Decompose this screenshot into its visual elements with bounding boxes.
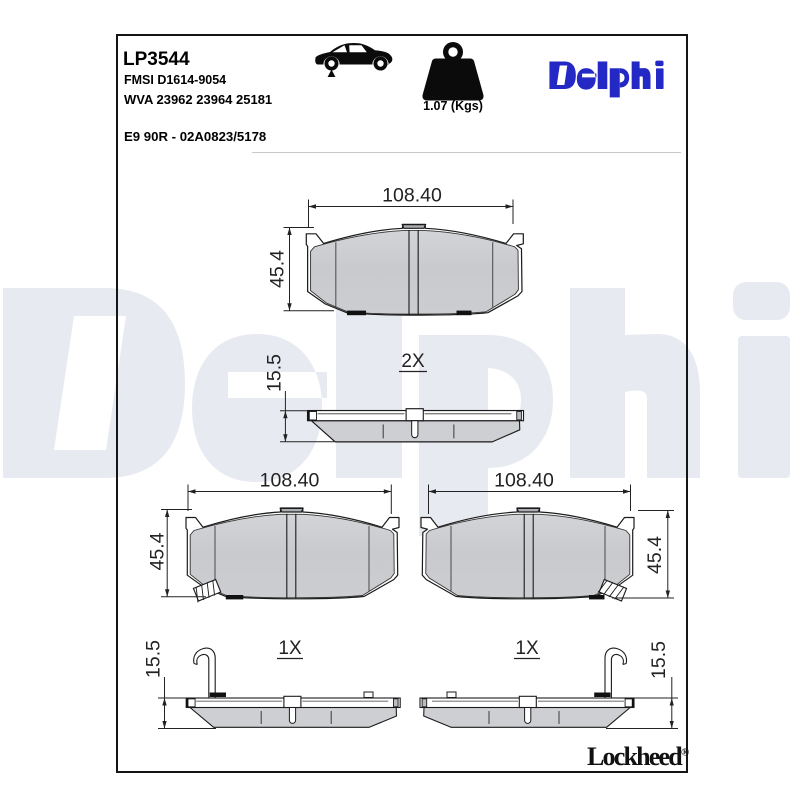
svg-text:1X: 1X bbox=[515, 638, 539, 659]
svg-text:45.4: 45.4 bbox=[644, 536, 666, 574]
svg-text:15.5: 15.5 bbox=[143, 640, 165, 678]
svg-text:108.40: 108.40 bbox=[494, 470, 554, 492]
svg-text:108.40: 108.40 bbox=[260, 470, 320, 492]
svg-text:45.4: 45.4 bbox=[267, 250, 289, 288]
svg-text:45.4: 45.4 bbox=[147, 532, 169, 570]
svg-text:1X: 1X bbox=[278, 638, 302, 659]
svg-text:2X: 2X bbox=[401, 351, 425, 372]
svg-text:108.40: 108.40 bbox=[382, 185, 442, 207]
svg-text:15.5: 15.5 bbox=[264, 354, 286, 392]
svg-text:15.5: 15.5 bbox=[648, 641, 670, 679]
